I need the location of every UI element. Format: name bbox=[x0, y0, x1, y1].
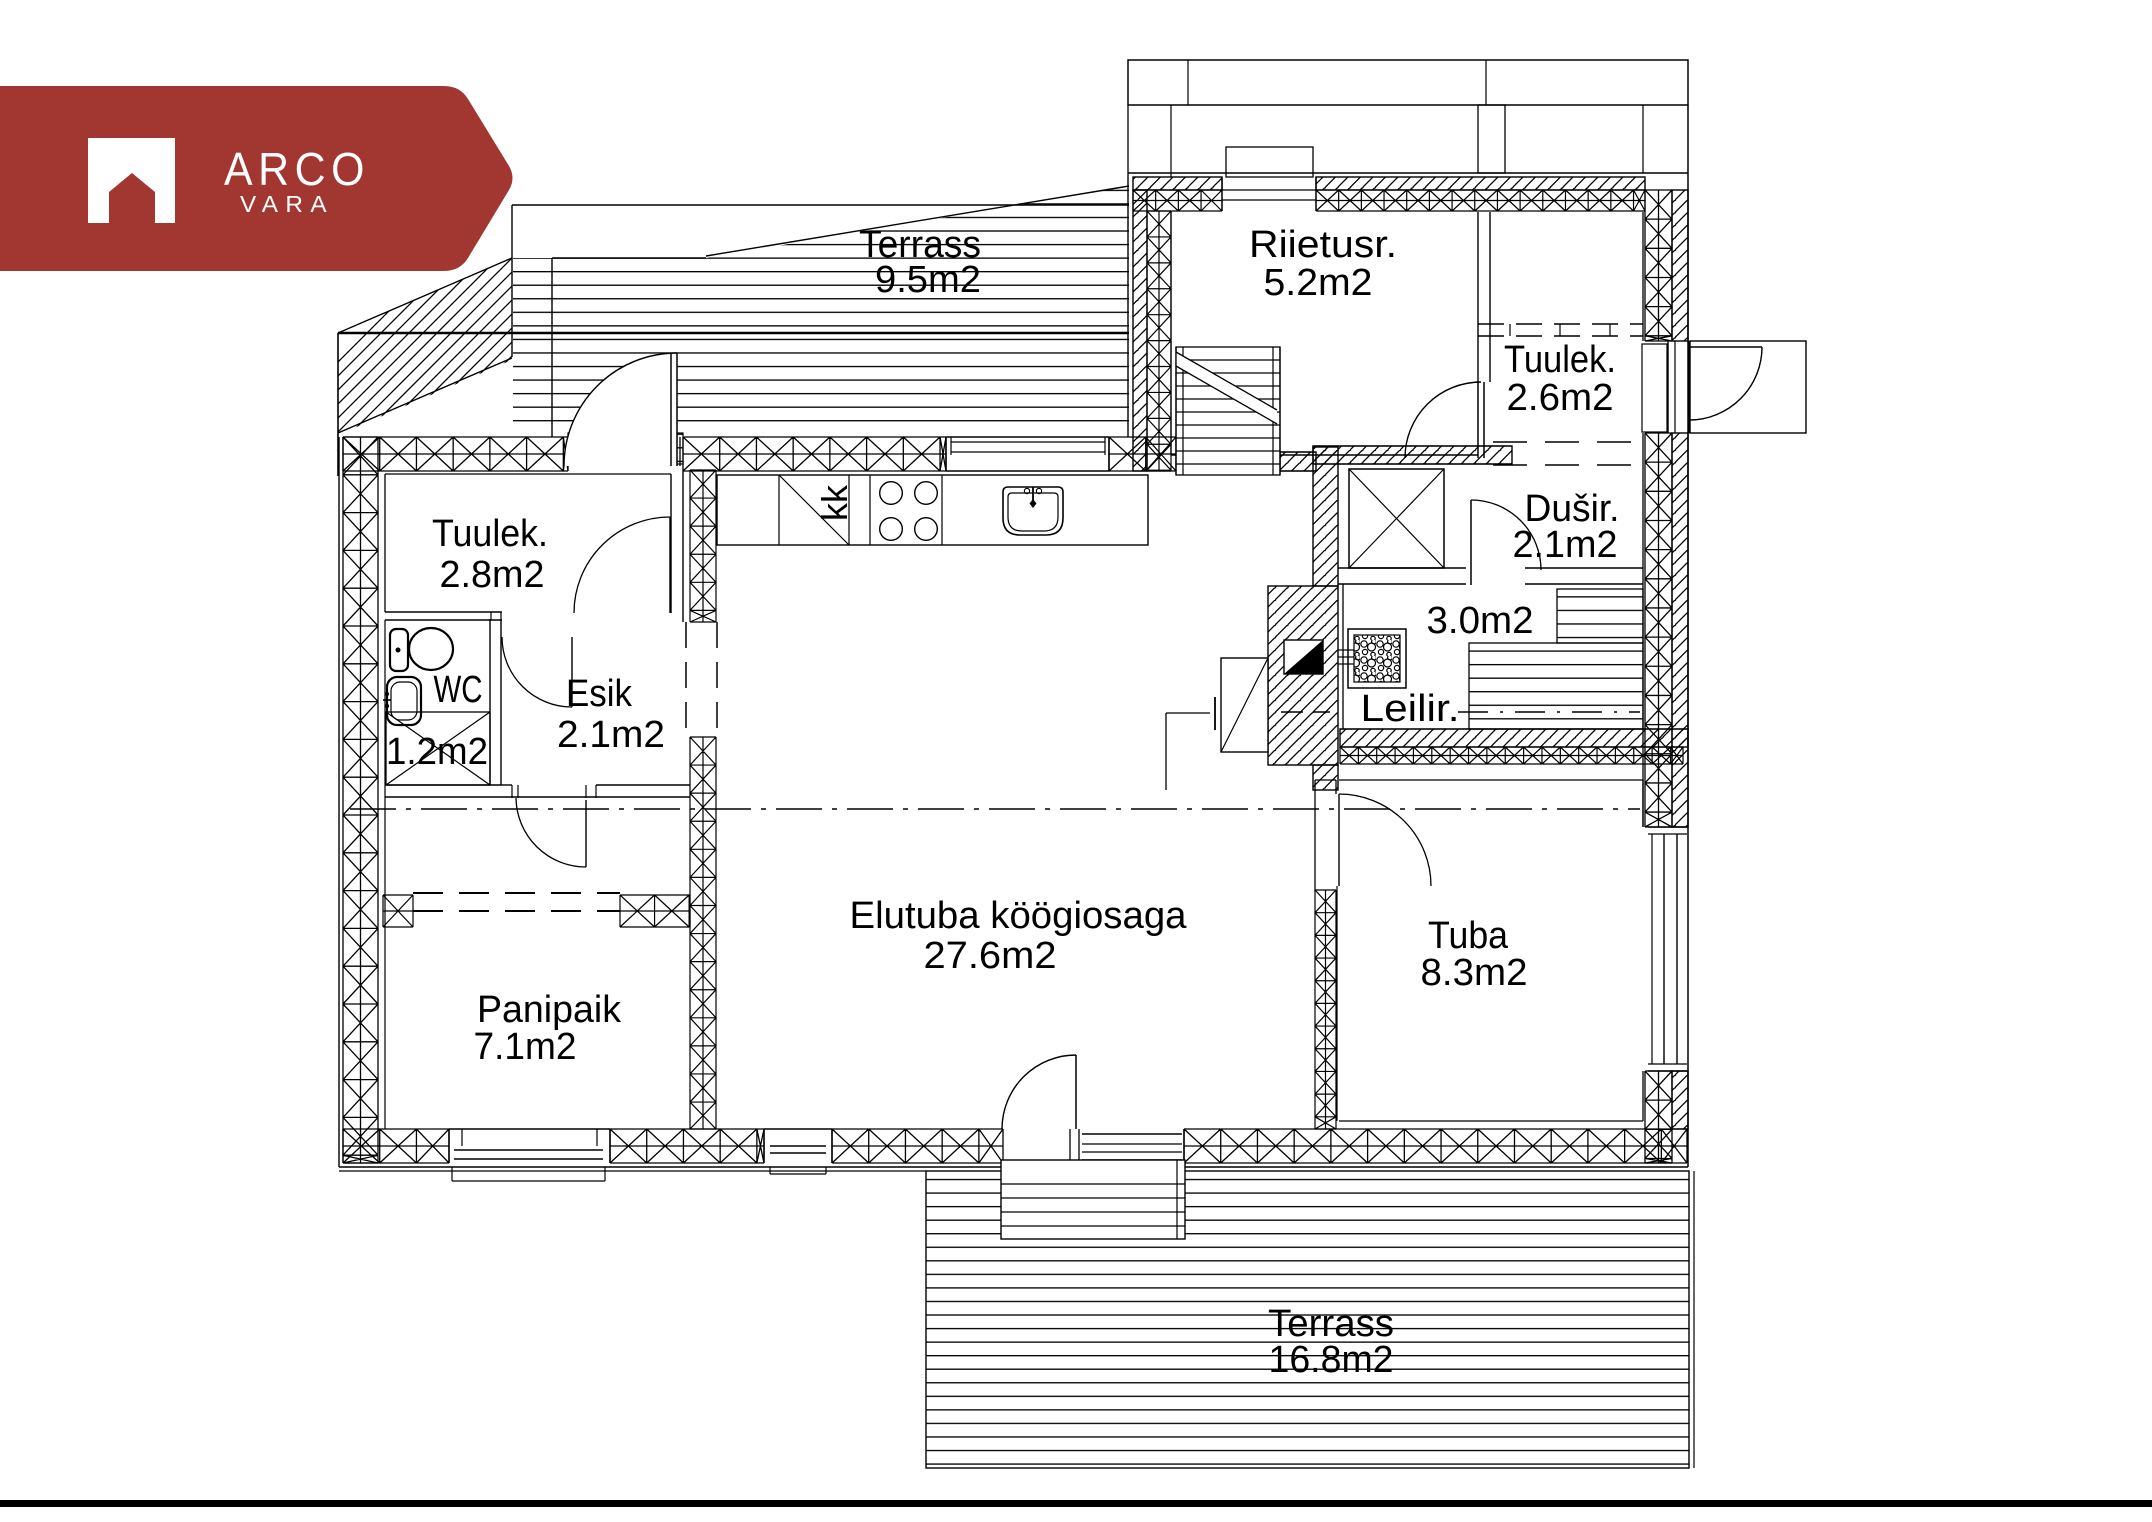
svg-text:9.5m2: 9.5m2 bbox=[875, 259, 981, 301]
svg-text:5.2m2: 5.2m2 bbox=[1264, 262, 1373, 304]
svg-text:2.1m2: 2.1m2 bbox=[557, 714, 665, 756]
svg-text:Panipaik: Panipaik bbox=[477, 989, 622, 1031]
svg-text:WC: WC bbox=[434, 669, 483, 711]
svg-text:2.8m2: 2.8m2 bbox=[440, 554, 545, 596]
svg-text:Tuulek.: Tuulek. bbox=[432, 513, 548, 555]
svg-text:27.6m2: 27.6m2 bbox=[924, 935, 1057, 977]
svg-text:VARA: VARA bbox=[240, 191, 334, 217]
svg-text:ARCO: ARCO bbox=[224, 143, 370, 195]
svg-text:kk: kk bbox=[814, 484, 855, 521]
svg-text:16.8m2: 16.8m2 bbox=[1269, 1339, 1394, 1381]
svg-text:8.3m2: 8.3m2 bbox=[1421, 952, 1528, 994]
svg-text:Tuulek.: Tuulek. bbox=[1504, 339, 1616, 381]
svg-text:7.1m2: 7.1m2 bbox=[474, 1026, 577, 1068]
svg-text:2.1m2: 2.1m2 bbox=[1513, 524, 1618, 566]
svg-text:1.2m2: 1.2m2 bbox=[386, 731, 488, 773]
svg-text:Leilir.: Leilir. bbox=[1361, 688, 1460, 730]
svg-text:Elutuba köögiosaga: Elutuba köögiosaga bbox=[850, 895, 1188, 937]
svg-text:Esik: Esik bbox=[566, 673, 633, 715]
svg-text:Tuba: Tuba bbox=[1428, 915, 1509, 957]
svg-text:3.0m2: 3.0m2 bbox=[1427, 600, 1534, 642]
svg-text:2.6m2: 2.6m2 bbox=[1507, 377, 1614, 419]
svg-text:Riietusr.: Riietusr. bbox=[1249, 224, 1397, 266]
